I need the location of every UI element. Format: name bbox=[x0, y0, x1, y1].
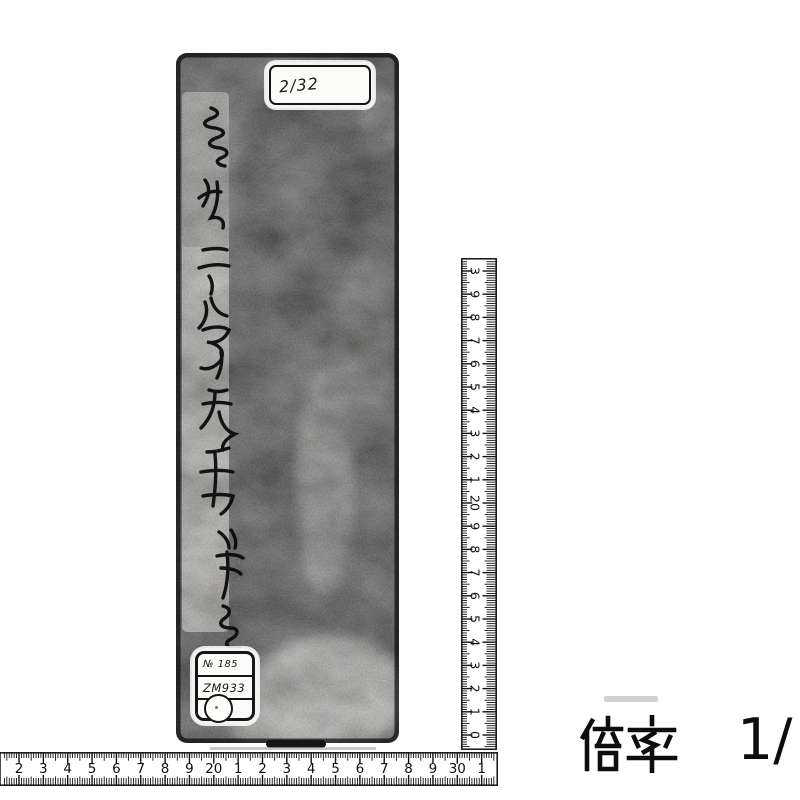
ruler-number: 8 bbox=[161, 761, 170, 777]
magnification-ratio: 1/ bbox=[737, 712, 792, 769]
shelf-label-text: 2/32 bbox=[270, 73, 319, 96]
scan-artifact-line bbox=[210, 747, 376, 750]
ruler-number: 5 bbox=[88, 761, 97, 777]
horizontal-ruler: 2345678920123456789301 bbox=[0, 752, 498, 786]
ruler-number: 6 bbox=[112, 761, 121, 777]
ruler-number: 5 bbox=[468, 383, 483, 391]
ruler-number: 4 bbox=[468, 406, 483, 414]
ruler-number: 4 bbox=[307, 761, 316, 777]
shelf-label-frame: 2/32 bbox=[269, 65, 371, 105]
ruler-number: 8 bbox=[468, 545, 483, 553]
ruler-numbers: 0123456789201234567893 bbox=[468, 267, 483, 739]
ruler-number: 7 bbox=[468, 569, 483, 577]
catalog-number-line1: № 185 bbox=[198, 654, 252, 677]
ruler-number: 8 bbox=[468, 313, 483, 321]
ruler-number: 6 bbox=[356, 761, 365, 777]
ruler-number: 2 bbox=[468, 453, 483, 461]
ruler-number: 2 bbox=[15, 761, 24, 777]
ruler-number: 1 bbox=[477, 761, 486, 777]
ruler-number: 2 bbox=[258, 761, 267, 777]
scan-page: 2/32 № 185 ZM933 0123456789201234567893 … bbox=[0, 0, 800, 800]
ruler-number: 5 bbox=[331, 761, 340, 777]
ruler-number: 6 bbox=[468, 592, 483, 600]
shelf-label: 2/32 bbox=[266, 62, 374, 108]
ruler-number: 3 bbox=[468, 661, 483, 669]
ruler-number: 5 bbox=[468, 615, 483, 623]
ruler-number: 6 bbox=[468, 360, 483, 368]
ruler-number: 3 bbox=[468, 267, 483, 275]
ruler-number: 4 bbox=[63, 761, 72, 777]
catalog-label: № 185 ZM933 bbox=[192, 648, 258, 724]
catalog-stamp-circle bbox=[204, 694, 233, 723]
ruler-number: 1 bbox=[468, 476, 483, 484]
scan-artifact-smudge bbox=[604, 696, 658, 702]
ruler-number: 3 bbox=[39, 761, 48, 777]
book-cover-image bbox=[175, 52, 400, 744]
ruler-number: 7 bbox=[380, 761, 389, 777]
ruler-number: 8 bbox=[404, 761, 413, 777]
catalog-label-frame: № 185 ZM933 bbox=[195, 651, 255, 721]
ruler-number: 3 bbox=[468, 429, 483, 437]
ruler-number: 4 bbox=[468, 638, 483, 646]
ruler-number: 7 bbox=[468, 337, 483, 345]
ruler-number: 7 bbox=[136, 761, 145, 777]
ruler-number: 20 bbox=[205, 761, 222, 777]
ruler-number: 30 bbox=[449, 761, 466, 777]
ruler-number: 9 bbox=[429, 761, 438, 777]
ruler-number: 1 bbox=[234, 761, 243, 777]
vertical-ruler: 0123456789201234567893 bbox=[461, 258, 497, 750]
ruler-number: 1 bbox=[468, 708, 483, 716]
ruler-number: 9 bbox=[468, 522, 483, 530]
ruler-number: 3 bbox=[283, 761, 292, 777]
ruler-number: 20 bbox=[468, 495, 483, 511]
ruler-number: 9 bbox=[468, 290, 483, 298]
ruler-number: 9 bbox=[185, 761, 194, 777]
ruler-number: 0 bbox=[468, 731, 483, 739]
magnification-kanji-glyphs bbox=[578, 715, 678, 773]
ruler-number: 2 bbox=[468, 685, 483, 693]
cover-texture bbox=[175, 52, 400, 744]
